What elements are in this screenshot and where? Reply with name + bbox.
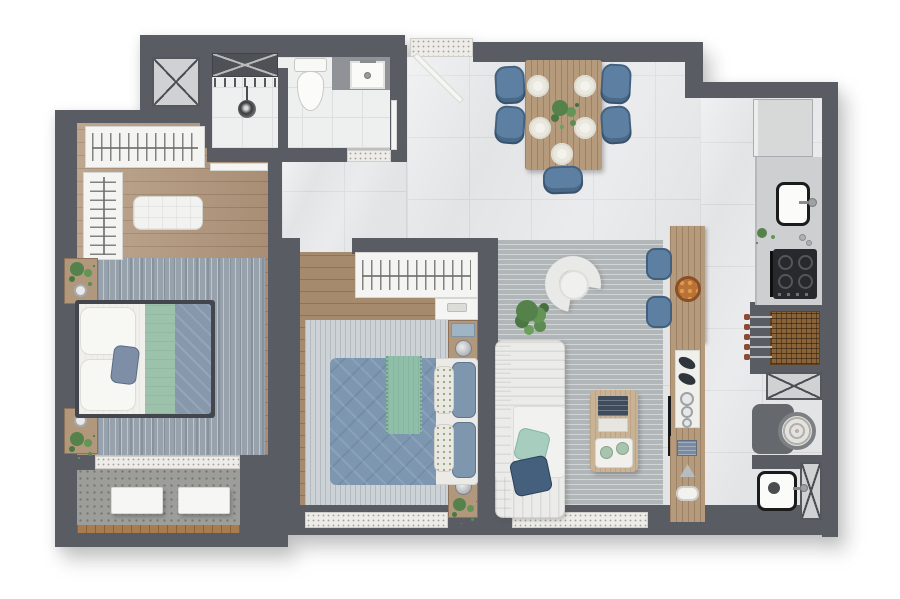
nightstand-decor-frame [451, 323, 475, 337]
vent-duct-hatch [212, 53, 278, 77]
burner-icon [798, 274, 813, 289]
wall-left [55, 110, 77, 547]
stacked-cups-icon [680, 392, 694, 406]
oven-handle-icon [770, 251, 773, 297]
bedroom1-window-sill [95, 456, 240, 469]
wall-bathroom-bottom [207, 148, 347, 162]
decor-dish-icon [74, 284, 87, 297]
shelf-decor-item [447, 303, 467, 312]
centerpiece-plant-icon [552, 100, 568, 116]
wall-bedroom2-left [282, 238, 300, 535]
toilet-tank [294, 58, 327, 72]
decor-tray-icon [676, 486, 699, 501]
bed-pillow-blue [452, 362, 476, 418]
coffee-table-books [598, 396, 628, 416]
accent-pillow [110, 345, 140, 386]
laundry-basket [778, 412, 816, 450]
kitchen-sink [776, 182, 810, 226]
dining-chair [494, 65, 526, 105]
bedroom1-blue-duvet [175, 304, 211, 414]
potted-plant-icon [70, 432, 84, 446]
place-setting [529, 117, 551, 139]
stacked-cups-icon [681, 406, 693, 418]
bed-pillow-floral [434, 424, 454, 472]
service-shaft-hatch-1 [766, 372, 822, 400]
place-setting [574, 117, 596, 139]
barbecue-grill [770, 311, 820, 365]
bed-pillow-floral [434, 366, 454, 414]
bathroom-door-leaf [391, 100, 397, 150]
sink-faucet-icon [360, 60, 376, 63]
wall-bedroom1-right [268, 162, 282, 455]
dining-chair [600, 105, 633, 145]
dining-chair [543, 165, 584, 194]
refrigerator [753, 99, 813, 157]
tray-plate-icon [616, 442, 629, 455]
tank-drain-icon [768, 482, 780, 494]
bedroom2-wardrobe [355, 252, 478, 298]
wall-balcony-bottom [55, 533, 288, 547]
balcony-bench [178, 487, 230, 514]
spice-shaker-icon [799, 234, 806, 241]
bedroom1-wardrobe-left [83, 172, 123, 260]
balcony-bench [111, 487, 163, 514]
wall-top-dining [473, 42, 703, 62]
bedroom1-wardrobe-top [85, 126, 205, 168]
armchair-seat [559, 270, 589, 300]
living-floor-plant-icon [516, 300, 538, 322]
tray-plate-icon [600, 446, 613, 459]
coffee-table-magazine [598, 418, 628, 432]
apartment-floor-plan [0, 0, 900, 599]
dining-chair [494, 105, 527, 145]
dining-chair [600, 63, 632, 105]
potted-plant-icon [453, 498, 466, 511]
shower-rail-icon [214, 78, 276, 87]
floor-plan-canvas [0, 0, 900, 599]
cooktop-knobs-icon [778, 293, 812, 296]
wall-shower-divider [278, 68, 288, 148]
elevator-shaft-hatch [152, 57, 200, 107]
potted-plant-icon [70, 262, 84, 276]
pizza-platter-icon [675, 276, 701, 302]
kitchen-herb-plant-icon [757, 228, 767, 238]
burner-icon [778, 255, 793, 270]
bedroom2-window-sill [305, 512, 448, 528]
stacked-cups-icon [682, 418, 692, 428]
kitchen-faucet-knob-icon [808, 198, 817, 207]
decor-box-icon [677, 440, 697, 456]
bar-stool [646, 248, 672, 280]
bedroom1-door-leaf [210, 163, 268, 171]
place-setting [574, 75, 596, 97]
place-setting [527, 75, 549, 97]
wall-balcony-right [240, 455, 282, 535]
place-setting [551, 143, 573, 165]
shower-head-icon [238, 100, 256, 118]
bathroom-threshold [347, 150, 391, 162]
bedroom2-green-throw [386, 356, 422, 434]
sink-drain-icon [364, 72, 371, 79]
bedroom1-bench [133, 196, 203, 230]
bedroom1-green-blanket [145, 304, 175, 414]
skewer-handles-icon [744, 314, 750, 320]
bed-pillow-blue [452, 422, 476, 478]
bar-stool [646, 296, 672, 328]
wall-top-kitchen [700, 82, 838, 98]
wall-shaft-left [140, 45, 152, 110]
wall-right [822, 82, 838, 537]
burner-icon [798, 255, 813, 270]
sofa-pillow-navy [509, 454, 554, 497]
table-lamp-icon [455, 340, 472, 357]
spice-shaker-icon [806, 240, 812, 246]
wall-window-stub-left [77, 455, 95, 470]
tank-faucet-knob-icon [800, 484, 808, 492]
burner-icon [778, 274, 793, 289]
